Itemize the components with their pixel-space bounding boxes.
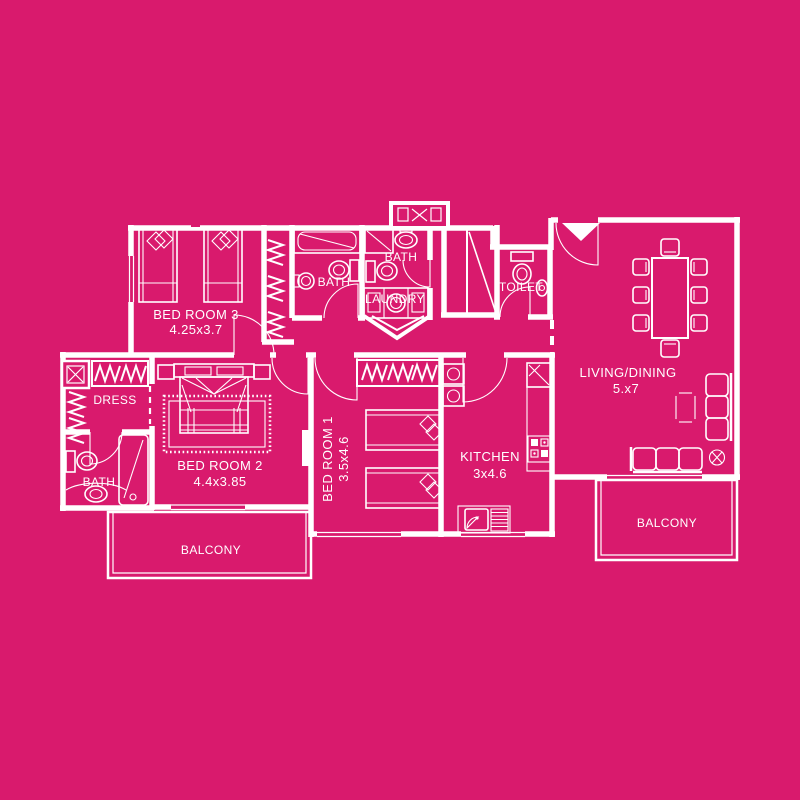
room-label: LAUNDRY [365, 292, 425, 306]
room-label: TOILET [499, 280, 543, 294]
room-label: BATH [385, 250, 418, 264]
room-dims: 4.4x3.85 [193, 474, 246, 489]
room-label: KITCHEN [460, 449, 520, 464]
window-bedroom1 [317, 530, 401, 540]
room-label: BED ROOM 2 [177, 458, 263, 473]
room-dims: 5.x7 [613, 381, 639, 396]
room-label: BED ROOM 3 [153, 307, 239, 322]
room-label: BALCONY [637, 516, 697, 530]
room-label: BATH [318, 275, 351, 289]
room-label: DRESS [93, 393, 136, 407]
room-label: BALCONY [181, 543, 241, 557]
room-dims: 4.25x3.7 [169, 322, 222, 337]
window-bedroom2 [171, 503, 245, 513]
floor-plan: BED ROOM 3 4.25x3.7 BATH [0, 0, 800, 800]
room-label: LIVING/DINING [580, 365, 677, 380]
wall-break [191, 220, 200, 227]
shaft-dress [62, 361, 89, 388]
room-label: BATH [83, 475, 116, 489]
room-dims: 3.5x4.6 [336, 436, 351, 481]
shaft-top [391, 203, 448, 228]
window-bedroom3 [127, 256, 136, 302]
wall-column [302, 430, 312, 466]
room-dims: 3x4.6 [473, 466, 507, 481]
side-table-icon [705, 446, 729, 469]
room-label: BED ROOM 1 [320, 416, 335, 502]
